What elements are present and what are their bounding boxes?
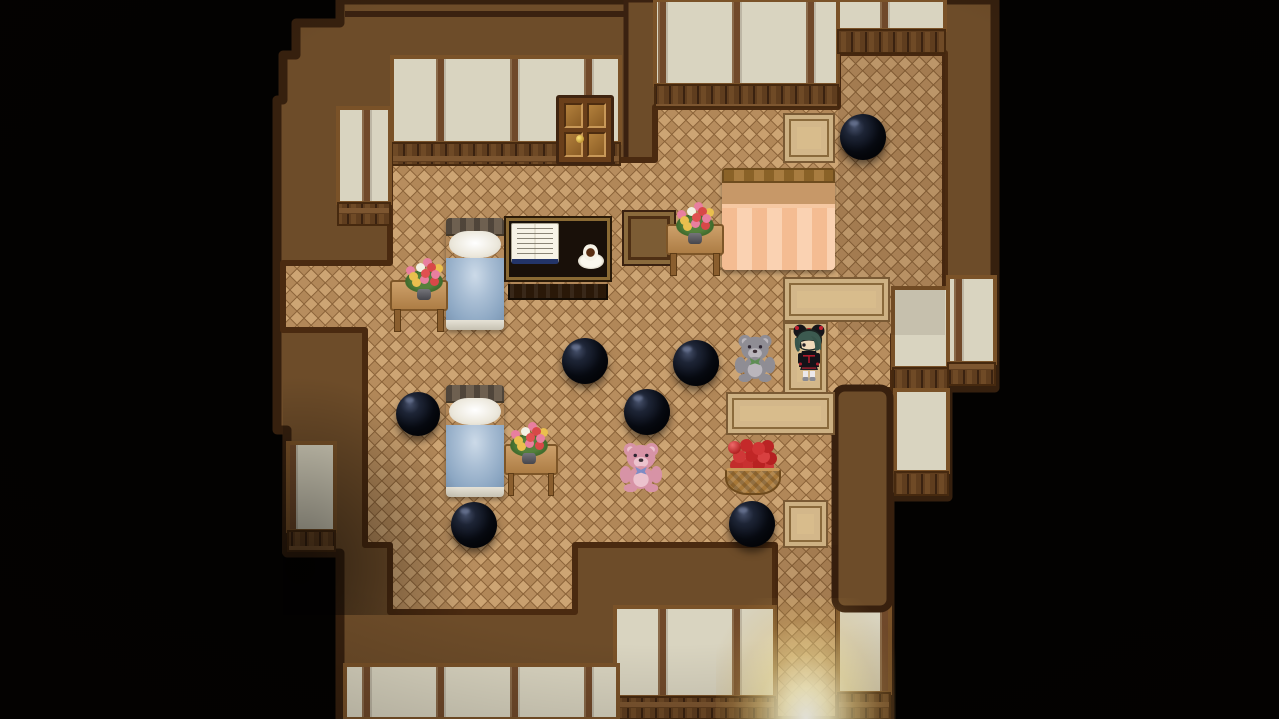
flower-pot xyxy=(417,289,431,300)
black-orb-7[interactable] xyxy=(729,501,775,547)
black-orb-6[interactable] xyxy=(451,502,497,548)
player-character[interactable] xyxy=(789,322,829,384)
bed-sheet-fringe xyxy=(446,487,504,497)
flower-pot xyxy=(522,453,536,464)
bed-headboard xyxy=(722,168,835,183)
floor-mat-south xyxy=(783,500,828,548)
bed-blanket xyxy=(722,204,835,270)
bed-blanket xyxy=(446,425,504,487)
table-leg xyxy=(508,473,514,496)
apples xyxy=(728,441,741,454)
flower-pot xyxy=(688,233,702,244)
black-orb-4[interactable] xyxy=(396,392,440,436)
open-book xyxy=(511,223,559,264)
table-leg xyxy=(713,253,720,276)
door-north[interactable] xyxy=(556,95,614,165)
bed-blanket xyxy=(446,258,504,320)
bed-sheet-fringe xyxy=(446,320,504,330)
black-orb-5[interactable] xyxy=(624,389,670,435)
game-viewport xyxy=(0,0,1279,719)
sprite-layer xyxy=(0,0,1279,719)
doorway-light-south xyxy=(716,598,896,719)
carpet-path-c xyxy=(726,392,835,435)
carpet-path-a xyxy=(783,277,890,322)
bed-orange-double[interactable] xyxy=(722,168,835,270)
desk-book-coffee[interactable] xyxy=(506,218,610,300)
table-leg xyxy=(670,253,677,276)
player-sprite xyxy=(789,322,829,384)
apple-basket[interactable] xyxy=(725,441,781,495)
flower-blossoms xyxy=(421,269,430,278)
teddy-bear-icon xyxy=(618,438,664,492)
door-knob xyxy=(576,135,584,143)
teddy-bear-gray[interactable] xyxy=(733,330,777,382)
table-leg xyxy=(437,309,444,332)
bed-pillows xyxy=(722,183,835,203)
bed-pillow xyxy=(449,398,501,425)
bed-blue-south[interactable] xyxy=(446,385,504,497)
flower-vase-north xyxy=(403,262,445,300)
desk-bench xyxy=(508,284,608,300)
black-orb-3[interactable] xyxy=(673,340,719,386)
floor-mat-north xyxy=(783,113,835,163)
table-leg xyxy=(548,473,554,496)
black-orb-2[interactable] xyxy=(562,338,608,384)
coffee-cup xyxy=(578,243,604,269)
flower-vase-east xyxy=(674,206,716,244)
black-orb-1[interactable] xyxy=(840,114,886,160)
flower-blossoms xyxy=(526,433,535,442)
table-leg xyxy=(394,309,401,332)
teddy-bear-pink[interactable] xyxy=(618,438,664,492)
bed-blue-north[interactable] xyxy=(446,218,504,330)
flower-blossoms xyxy=(692,213,701,222)
flower-vase-south xyxy=(508,426,550,464)
teddy-bear-icon xyxy=(733,330,777,382)
bed-pillow xyxy=(449,231,501,258)
basket-body xyxy=(725,468,781,495)
